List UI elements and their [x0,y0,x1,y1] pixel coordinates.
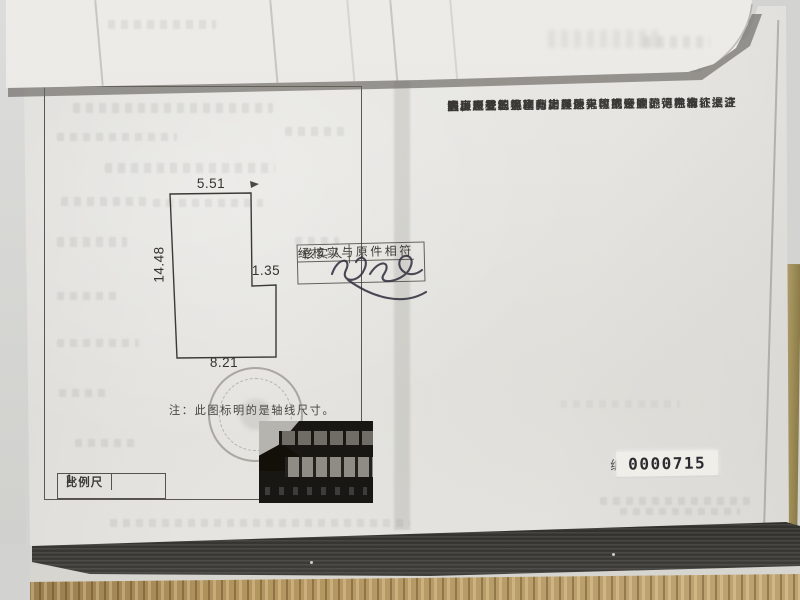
scale-value: 1: [58,474,76,486]
floor-corner [0,544,30,600]
bleed-smudge [110,519,410,527]
dimension-left: 14.48 [152,235,167,295]
serial-number: 0000715 [616,450,718,477]
dimension-top: 5.51 [187,176,235,191]
scale-box: 比例尺 1: [57,473,166,499]
building-photo-base [265,487,367,495]
building-photo-window-band [285,457,373,477]
building-photo-window-band [279,431,373,445]
bleed-smudge [620,508,740,515]
bleed-smudge [560,400,680,408]
building-photo [259,421,373,503]
floor-plan-frame: 5.51 14.48 1.35 8.21 注：此图标明的是轴线尺寸。 比例尺 1… [44,86,362,500]
dust-speck [310,561,313,564]
bleed-smudge [600,497,750,505]
dimension-step: 1.35 [248,263,284,278]
dimension-bottom: 8.21 [201,355,247,370]
page-corner-curve [0,0,800,100]
handwritten-signature [318,240,438,318]
dust-speck [612,553,615,556]
photographed-certificate-page: 5.51 14.48 1.35 8.21 注：此图标明的是轴线尺寸。 比例尺 1… [0,0,800,600]
